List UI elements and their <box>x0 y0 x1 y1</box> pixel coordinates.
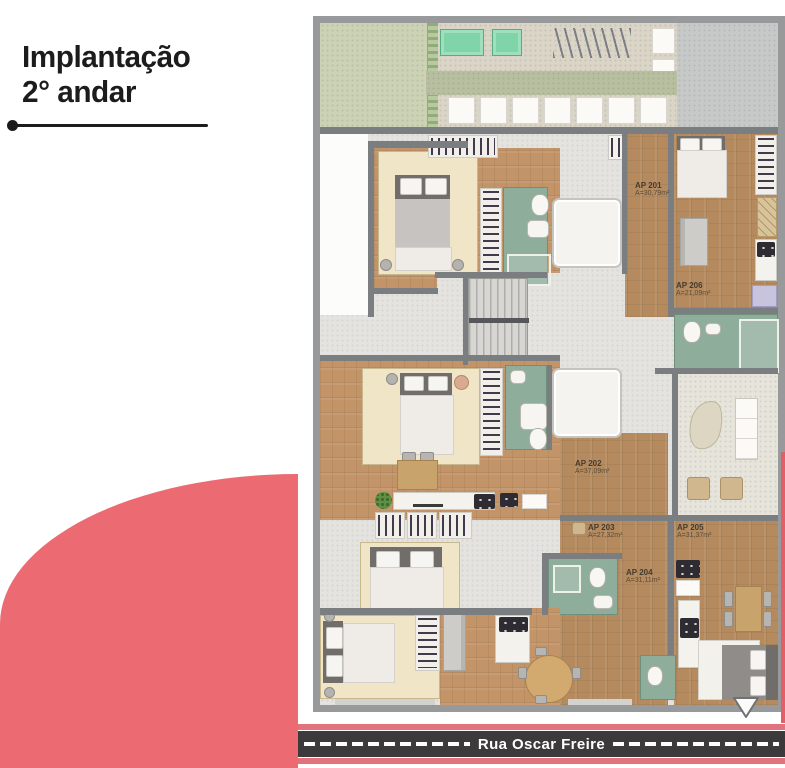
pillow <box>750 676 766 696</box>
wall <box>463 278 468 365</box>
apartment-id: AP 204 <box>626 568 660 577</box>
wardrobe <box>375 512 405 539</box>
bed <box>323 621 395 683</box>
armchair <box>454 375 469 390</box>
closet <box>757 197 777 237</box>
chair <box>763 611 772 627</box>
appliance <box>522 494 547 509</box>
nightstand <box>324 687 335 698</box>
bed <box>395 175 450 271</box>
lightwell <box>320 134 368 315</box>
bed <box>722 645 778 700</box>
page-title-line2: 2° andar <box>22 75 190 110</box>
apartment-id: AP 201 <box>635 181 669 190</box>
street-curb-bottom <box>298 757 785 765</box>
pillow <box>428 376 448 391</box>
apartment-area: A=27,32m² <box>588 532 622 540</box>
kitchen-counter <box>678 600 700 668</box>
chair <box>535 647 547 656</box>
apartment-area: A=31,11m² <box>626 577 660 585</box>
kitchen-counter <box>393 492 495 510</box>
title-underline <box>10 124 208 127</box>
sink <box>705 323 721 335</box>
stairs <box>468 278 528 365</box>
wall <box>672 374 678 515</box>
washer <box>752 285 777 307</box>
wardrobe <box>415 615 440 671</box>
wardrobe <box>755 135 777 195</box>
wall <box>542 553 622 559</box>
apartment-label-203: AP 203 A=27,32m² <box>588 523 622 540</box>
kitchen-counter <box>755 239 777 281</box>
pillow <box>425 178 447 195</box>
pink-quarter-decoration <box>0 474 298 768</box>
apartment-id: AP 205 <box>677 523 711 532</box>
terrace-lounge-band <box>426 71 677 95</box>
appliance <box>676 580 700 596</box>
apartment-label-202: AP 202 A=37,09m² <box>575 459 609 476</box>
apartment-area: A=30,79m² <box>635 190 669 198</box>
street-centerline <box>304 742 470 746</box>
cooktop <box>474 494 495 509</box>
appliance <box>500 493 518 507</box>
round-table <box>525 655 573 703</box>
wall <box>320 355 560 361</box>
apartment-id: AP 206 <box>676 281 710 290</box>
apartment-label-206: AP 206 A=21,09m² <box>676 281 710 298</box>
elevator <box>552 368 622 438</box>
chair <box>724 591 733 607</box>
bed-foot <box>395 247 452 271</box>
window <box>568 699 632 705</box>
sofa <box>680 218 708 266</box>
wall <box>668 308 778 314</box>
appliance <box>676 560 700 578</box>
bed <box>400 373 452 453</box>
street-bar: Rua Oscar Freire <box>298 723 785 765</box>
wardrobe <box>480 368 503 456</box>
chair <box>724 611 733 627</box>
wall <box>542 553 548 615</box>
terrace-table <box>640 97 667 124</box>
cooktop <box>499 617 528 632</box>
terrace-table <box>576 97 603 124</box>
wall <box>320 127 778 134</box>
dining-table <box>397 460 438 490</box>
pouf <box>687 477 710 500</box>
bed-blanket <box>370 567 444 611</box>
cooktop <box>680 618 699 638</box>
plant <box>375 492 392 509</box>
sofa <box>443 613 466 671</box>
pillow <box>404 376 424 391</box>
floor-plan: AP 201 A=30,79m² AP 206 A=21,09m² AP 202… <box>313 16 785 712</box>
apartment-label-204: AP 204 A=31,11m² <box>626 568 660 585</box>
wall <box>668 134 674 317</box>
terrace-table <box>448 97 475 124</box>
terrace-table <box>608 97 635 124</box>
apartment-label-201: AP 201 A=30,79m² <box>635 181 669 198</box>
apartment-area: A=21,09m² <box>676 290 710 298</box>
page-title: Implantação 2° andar <box>22 40 190 109</box>
toilet <box>529 428 547 450</box>
sink <box>510 370 526 384</box>
kitchen-sink <box>413 504 443 507</box>
sink <box>593 595 613 609</box>
wardrobe <box>480 188 502 275</box>
terrace-grass <box>320 23 427 127</box>
right-edge-accent <box>781 452 785 724</box>
bathtub <box>520 403 547 430</box>
wall <box>668 521 674 655</box>
pillow <box>750 650 766 670</box>
terrace-table <box>480 97 507 124</box>
street-name: Rua Oscar Freire <box>478 736 605 753</box>
wardrobe <box>439 512 472 539</box>
pergola-canopy <box>440 29 484 56</box>
bed <box>370 547 442 609</box>
apartment-label-205: AP 205 A=31,37m² <box>677 523 711 540</box>
pillow <box>376 551 400 568</box>
chair <box>763 591 772 607</box>
chair <box>572 667 581 679</box>
pouf <box>572 522 586 535</box>
gym-equipment <box>553 28 631 58</box>
sink <box>527 220 549 238</box>
bed-headboard <box>766 645 778 700</box>
wall <box>368 141 468 148</box>
bathroom <box>503 187 548 285</box>
ap201-entry-floor <box>625 134 668 317</box>
page: Implantação 2° andar <box>0 0 785 768</box>
microwave <box>757 242 775 257</box>
chair <box>535 695 547 704</box>
chair <box>518 667 527 679</box>
dining-table <box>735 586 762 632</box>
elevator <box>552 198 622 268</box>
bed-blanket <box>400 395 454 455</box>
nightstand <box>452 259 464 271</box>
bed <box>677 136 725 196</box>
wall <box>435 272 547 278</box>
wall <box>622 134 627 274</box>
kitchen-counter <box>495 615 530 663</box>
pillow <box>400 178 422 195</box>
pillow <box>326 655 343 677</box>
pillow <box>326 627 343 649</box>
nightstand <box>386 373 398 385</box>
page-title-line1: Implantação <box>22 40 190 75</box>
pouf <box>720 477 743 500</box>
bathroom <box>505 365 547 450</box>
terrace-table <box>512 97 539 124</box>
bed-blanket <box>343 623 395 683</box>
apartment-area: A=37,09m² <box>575 468 609 476</box>
terrace-side-table <box>652 28 675 54</box>
street-centerline <box>613 742 779 746</box>
bed-blanket <box>677 150 727 198</box>
apartment-id: AP 202 <box>575 459 609 468</box>
terrace-table <box>544 97 571 124</box>
bathroom <box>640 655 676 700</box>
pergola-canopy <box>492 29 522 56</box>
wall <box>368 288 438 294</box>
bed-blanket <box>395 199 450 247</box>
bathroom <box>674 314 778 372</box>
street-curb-top <box>298 723 785 731</box>
shower <box>739 319 779 373</box>
bathroom <box>548 558 618 615</box>
toilet <box>589 567 606 588</box>
pillow <box>410 551 434 568</box>
sofa <box>735 398 758 460</box>
window <box>335 699 435 705</box>
street-road: Rua Oscar Freire <box>298 731 785 757</box>
apartment-area: A=31,37m² <box>677 532 711 540</box>
toilet <box>683 321 701 343</box>
toilet <box>647 666 663 686</box>
toilet <box>531 194 549 216</box>
shower <box>553 565 581 593</box>
wall <box>547 365 552 450</box>
entrance-arrow-icon <box>732 696 760 725</box>
stairs-landing-divider <box>469 318 529 323</box>
wall <box>320 608 532 615</box>
wardrobe <box>407 512 437 539</box>
terrace-gray-area <box>677 23 778 127</box>
nightstand <box>380 259 392 271</box>
apartment-id: AP 203 <box>588 523 622 532</box>
